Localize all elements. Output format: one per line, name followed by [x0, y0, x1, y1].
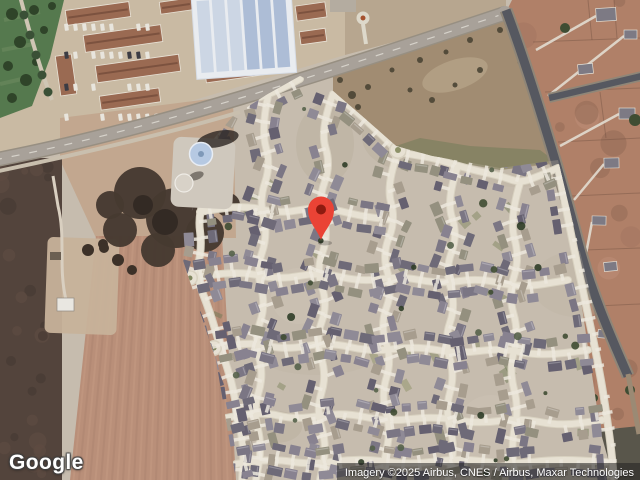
map-attribution: Imagery ©2025 Airbus, CNES / Airbus, Max… — [337, 463, 640, 480]
marker-inner-dot — [316, 205, 326, 215]
marker-pin-shape — [308, 197, 334, 241]
google-logo[interactable]: Google — [9, 451, 84, 475]
map-marker[interactable] — [301, 196, 341, 242]
map-canvas[interactable]: Google Imagery ©2025 Airbus, CNES / Airb… — [0, 0, 640, 480]
attribution-text: Imagery ©2025 Airbus, CNES / Airbus, Max… — [345, 467, 634, 479]
